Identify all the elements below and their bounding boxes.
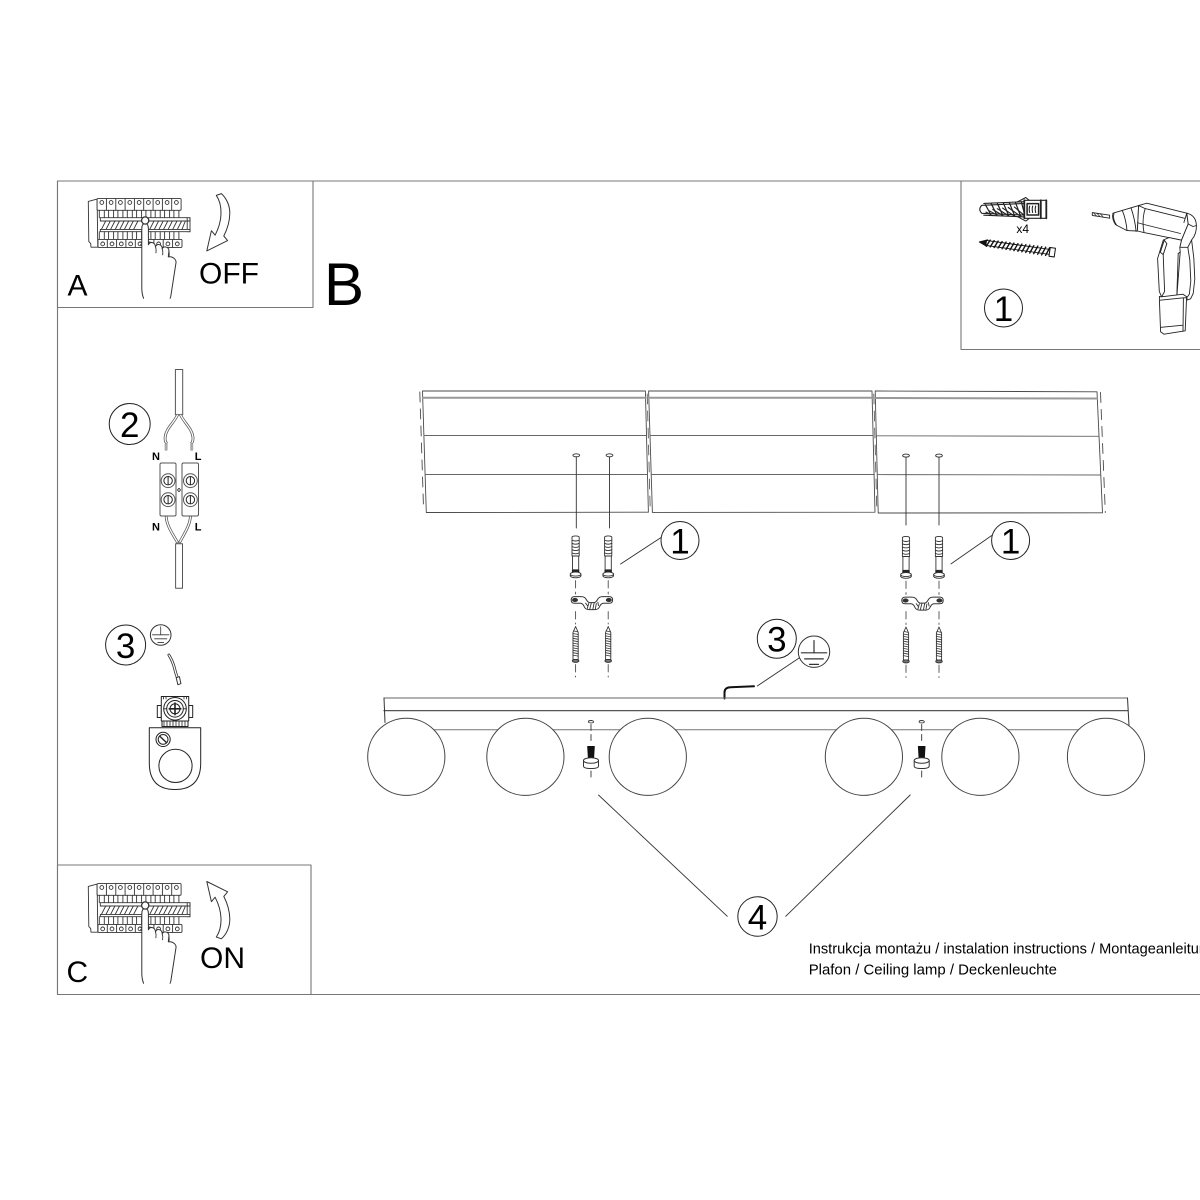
svg-text:N: N bbox=[152, 451, 160, 463]
svg-text:C: C bbox=[67, 956, 89, 989]
svg-text:L: L bbox=[195, 522, 202, 534]
svg-text:2: 2 bbox=[120, 406, 139, 445]
svg-text:B: B bbox=[324, 251, 364, 318]
svg-text:Plafon / Ceiling lamp / Decken: Plafon / Ceiling lamp / Deckenleuchte bbox=[809, 961, 1057, 978]
svg-text:3: 3 bbox=[116, 627, 135, 666]
svg-text:3: 3 bbox=[767, 621, 786, 660]
svg-text:1: 1 bbox=[994, 290, 1013, 329]
svg-text:OFF: OFF bbox=[199, 258, 259, 291]
svg-text:x4: x4 bbox=[1016, 222, 1029, 236]
svg-text:L: L bbox=[195, 451, 202, 463]
svg-text:ON: ON bbox=[200, 942, 245, 975]
svg-text:Instrukcja montażu / instalati: Instrukcja montażu / instalation instruc… bbox=[809, 942, 1200, 958]
svg-text:4: 4 bbox=[748, 899, 767, 938]
svg-text:A: A bbox=[68, 270, 88, 303]
svg-text:N: N bbox=[152, 522, 160, 534]
svg-text:1: 1 bbox=[1001, 523, 1020, 562]
svg-text:1: 1 bbox=[670, 523, 689, 562]
